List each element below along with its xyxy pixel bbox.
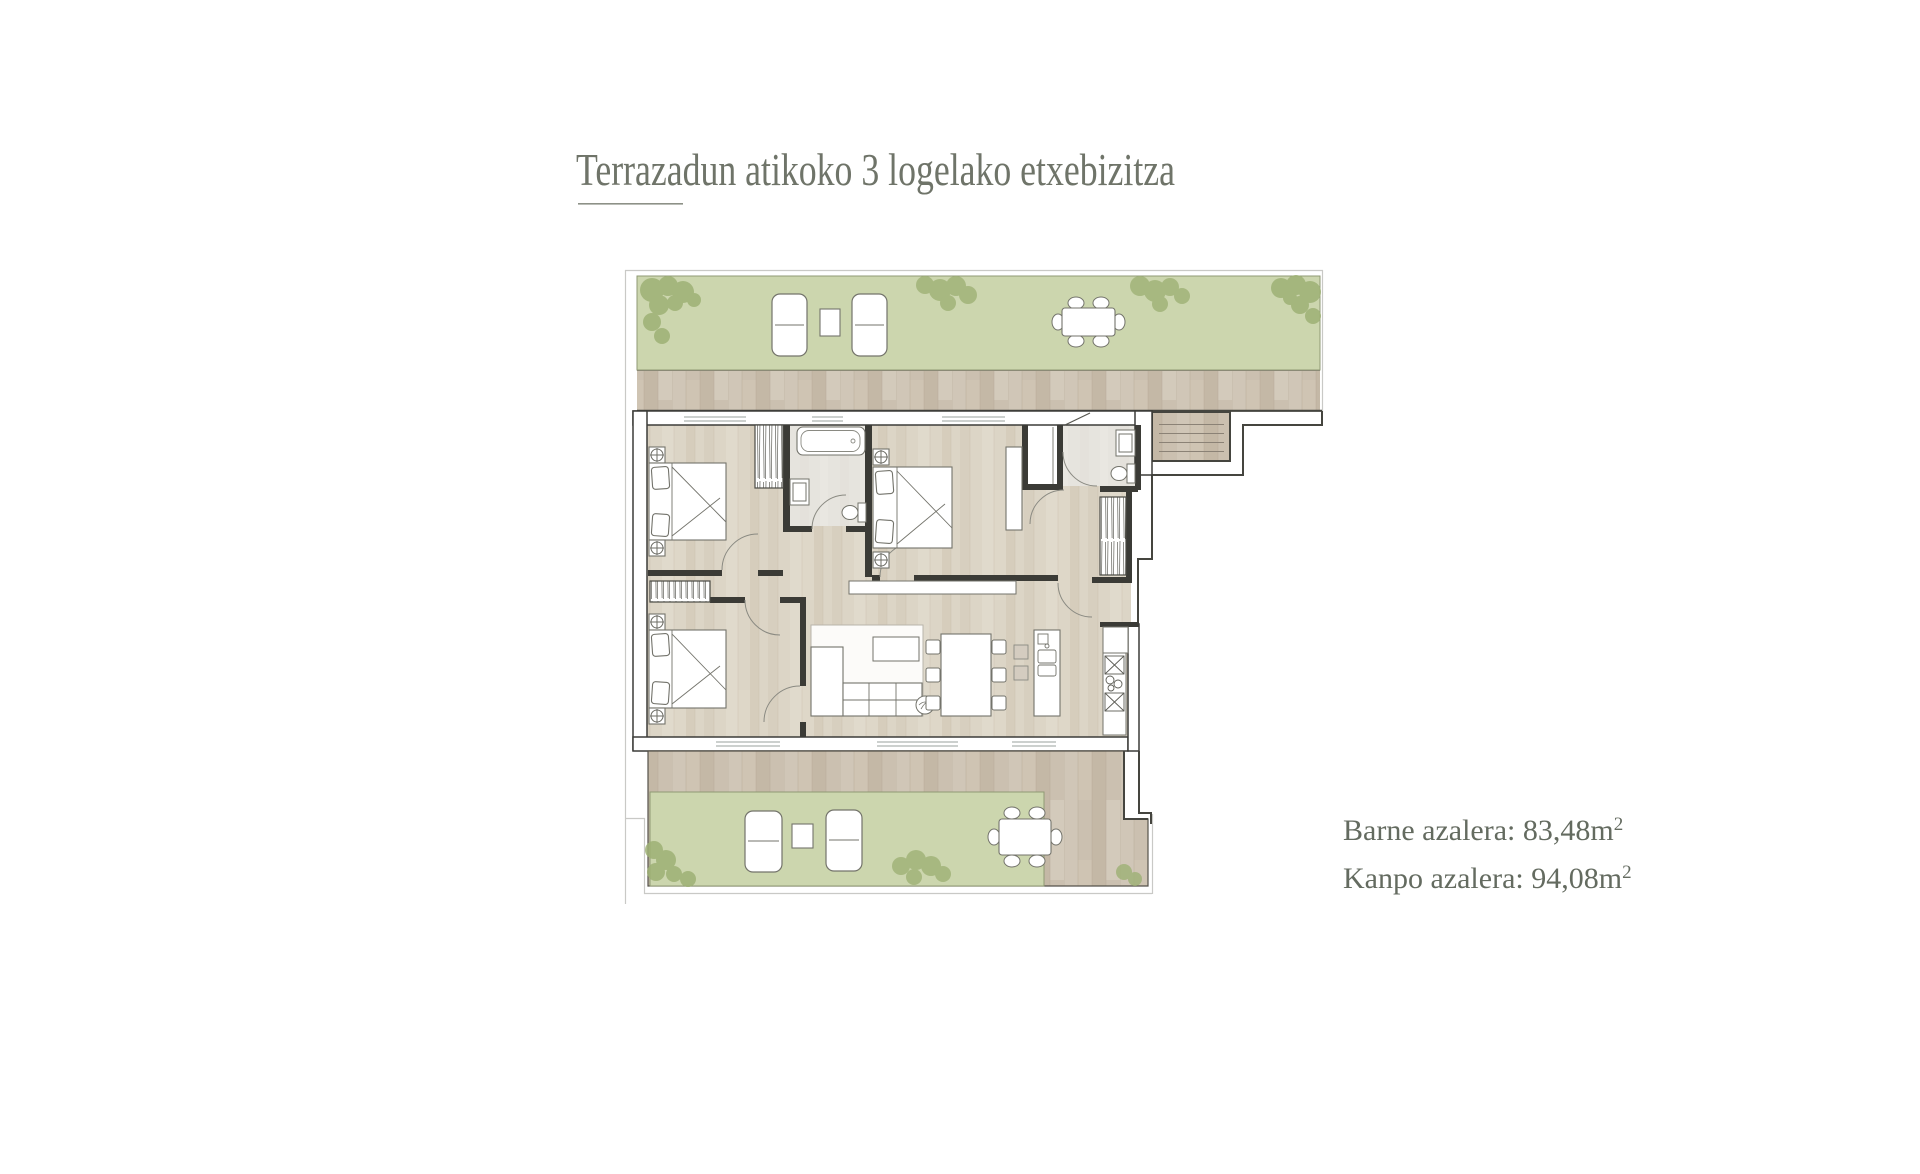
svg-text:Kanpo azalera: 94,08m2: Kanpo azalera: 94,08m2 bbox=[1343, 862, 1632, 895]
svg-text:Terrazadun atikoko 3 logelako: Terrazadun atikoko 3 logelako etxebizitz… bbox=[576, 144, 1175, 195]
svg-text:Barne azalera: 83,48m2: Barne azalera: 83,48m2 bbox=[1343, 814, 1623, 847]
